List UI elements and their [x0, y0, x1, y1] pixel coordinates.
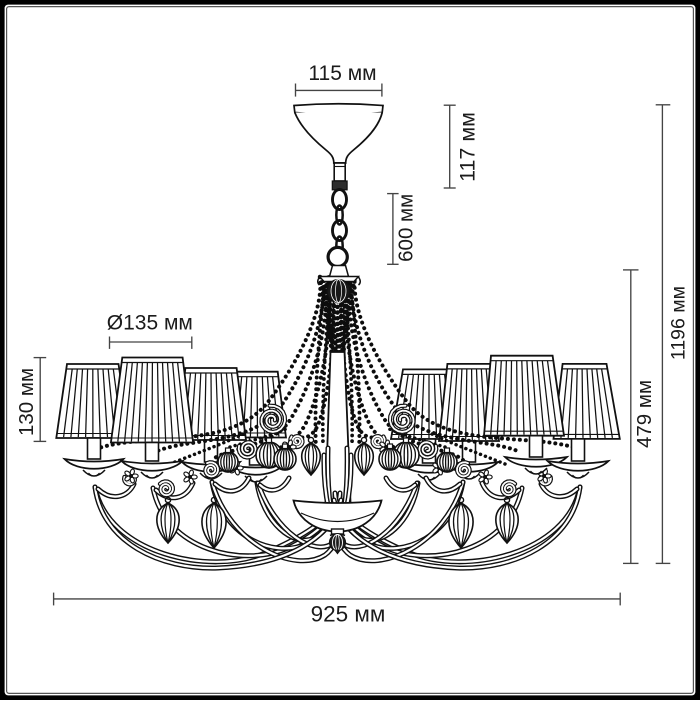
- svg-text:115 мм: 115 мм: [308, 62, 376, 85]
- svg-text:479 мм: 479 мм: [633, 380, 656, 448]
- svg-text:925 мм: 925 мм: [311, 601, 386, 626]
- svg-text:130 мм: 130 мм: [15, 368, 38, 436]
- svg-text:600 мм: 600 мм: [394, 194, 417, 262]
- svg-text:1196 мм: 1196 мм: [668, 286, 690, 360]
- svg-text:Ø135 мм: Ø135 мм: [107, 312, 193, 335]
- svg-text:117 мм: 117 мм: [455, 112, 479, 182]
